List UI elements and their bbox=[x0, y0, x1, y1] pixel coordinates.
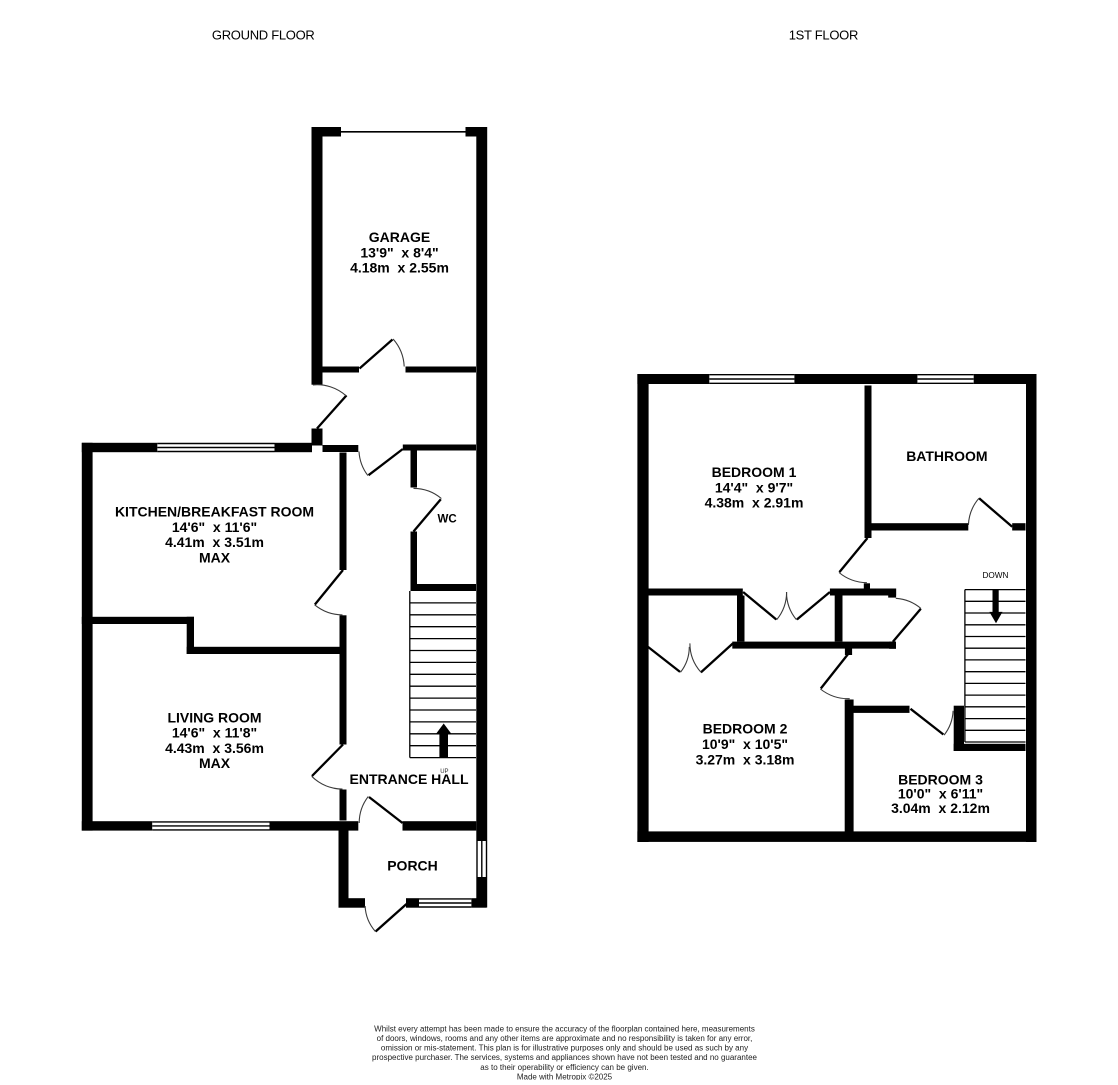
svg-text:DOWN: DOWN bbox=[982, 571, 1008, 580]
svg-text:GROUND FLOOR: GROUND FLOOR bbox=[212, 28, 315, 43]
svg-text:Whilst every attempt has been: Whilst every attempt has been made to en… bbox=[374, 1024, 755, 1033]
svg-text:as to their operability or eff: as to their operability or efficiency ca… bbox=[480, 1063, 648, 1072]
svg-text:10'9" x 10'5": 10'9" x 10'5" bbox=[702, 736, 788, 752]
svg-text:1ST FLOOR: 1ST FLOOR bbox=[789, 27, 858, 42]
svg-text:13'9" x 8'4": 13'9" x 8'4" bbox=[360, 244, 438, 260]
svg-text:BATHROOM: BATHROOM bbox=[906, 448, 987, 464]
svg-text:MAX: MAX bbox=[199, 549, 231, 565]
svg-text:ENTRANCE HALL: ENTRANCE HALL bbox=[350, 771, 469, 787]
svg-text:prospective purchaser. The ser: prospective purchaser. The services, sys… bbox=[372, 1053, 758, 1062]
svg-text:WC: WC bbox=[438, 514, 457, 526]
svg-text:BEDROOM 2: BEDROOM 2 bbox=[703, 721, 788, 737]
svg-text:omission or mis-statement. Thi: omission or mis-statement. This plan is … bbox=[381, 1044, 748, 1053]
svg-text:14'6" x 11'8": 14'6" x 11'8" bbox=[172, 725, 257, 741]
svg-text:of doors, windows, rooms and a: of doors, windows, rooms and any other i… bbox=[377, 1034, 753, 1043]
svg-text:KITCHEN/BREAKFAST ROOM: KITCHEN/BREAKFAST ROOM bbox=[115, 504, 314, 520]
svg-text:GARAGE: GARAGE bbox=[369, 229, 430, 245]
svg-text:14'6" x 11'6": 14'6" x 11'6" bbox=[172, 519, 257, 535]
svg-text:4.38m x 2.91m: 4.38m x 2.91m bbox=[705, 495, 804, 511]
svg-text:4.18m x 2.55m: 4.18m x 2.55m bbox=[350, 260, 449, 276]
svg-text:LIVING ROOM: LIVING ROOM bbox=[167, 709, 261, 725]
svg-text:PORCH: PORCH bbox=[387, 858, 438, 874]
svg-text:BEDROOM 1: BEDROOM 1 bbox=[712, 464, 797, 480]
svg-text:3.04m x 2.12m: 3.04m x 2.12m bbox=[891, 800, 990, 816]
svg-text:4.43m x 3.56m: 4.43m x 3.56m bbox=[165, 740, 264, 756]
svg-text:3.27m x 3.18m: 3.27m x 3.18m bbox=[696, 751, 795, 767]
svg-text:Made with Metropix ©2025: Made with Metropix ©2025 bbox=[517, 1072, 613, 1080]
svg-text:MAX: MAX bbox=[199, 755, 231, 771]
svg-text:14'4" x 9'7": 14'4" x 9'7" bbox=[715, 479, 793, 495]
svg-text:4.41m x 3.51m: 4.41m x 3.51m bbox=[165, 534, 264, 550]
